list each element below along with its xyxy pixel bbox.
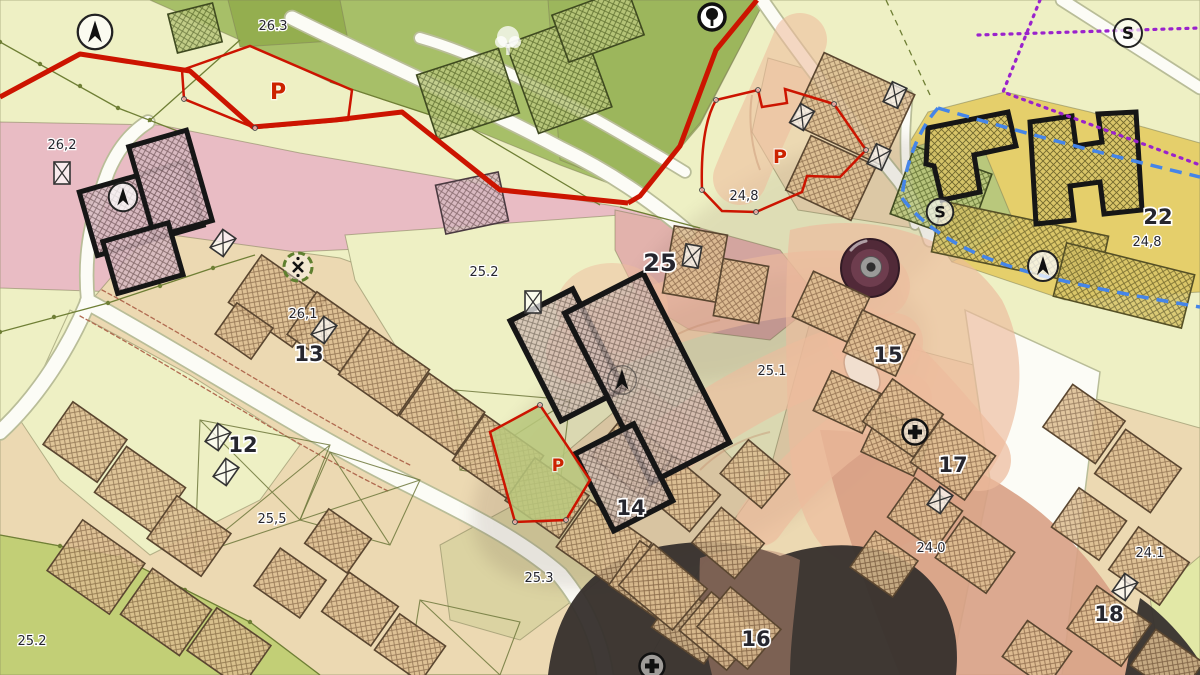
public-parcel-label: P	[270, 80, 286, 105]
parcel-label: 25	[643, 249, 676, 277]
parcel-label: 26,1	[289, 307, 318, 322]
public-parcel-label: P	[773, 146, 787, 168]
parcel-label: 25.3	[525, 571, 554, 586]
parcel-label: 25.2	[470, 265, 499, 280]
parcel-label: 24,8	[730, 189, 759, 204]
parcel-label: 16	[741, 627, 770, 651]
parcel-label: 25.1	[758, 364, 787, 379]
parcel-label: 24.1	[1136, 546, 1165, 561]
tree-dark-icon	[699, 4, 725, 30]
screenshot-root: SS26.326,226,1131225,525.225.225.32525.1…	[0, 0, 1200, 675]
rect-x-icon	[525, 291, 541, 313]
survey-dot	[52, 315, 56, 319]
crossed-circle-icon	[284, 253, 312, 281]
north-circle-icon	[1028, 251, 1058, 281]
parcel-label: 15	[873, 343, 902, 367]
dot	[296, 274, 299, 277]
parcel-vertex-dot	[564, 518, 569, 523]
survey-dot	[78, 84, 82, 88]
parcel-vertex-dot	[714, 98, 719, 103]
plus-circle-icon	[640, 654, 665, 675]
parcel-label: 22	[1143, 205, 1172, 229]
parcel-vertex-dot	[700, 188, 705, 193]
parcel-label: 24.0	[917, 541, 946, 556]
parcel-label: 26,2	[48, 138, 77, 153]
parcel-vertex-dot	[754, 210, 759, 215]
parcel-label: 25.2	[18, 634, 47, 649]
s-circle-icon: S	[1114, 19, 1142, 47]
survey-dot	[116, 106, 120, 110]
cadastral-map: SS26.326,226,1131225,525.225.225.32525.1…	[0, 0, 1200, 675]
tree-trunk	[506, 44, 510, 55]
plus-circle-icon	[903, 420, 928, 445]
public-parcel-label: P	[552, 456, 564, 476]
north-circle-icon	[109, 183, 138, 212]
s-circle-icon: S	[927, 199, 954, 226]
parcel-vertex-dot	[253, 126, 258, 131]
tree-canopy	[495, 36, 507, 48]
survey-dot	[106, 301, 110, 305]
parcel-label: 14	[616, 496, 645, 520]
parcel-label: 24,8	[1133, 235, 1162, 250]
parcel-vertex-dot	[864, 148, 869, 153]
survey-dot	[158, 284, 162, 288]
symbol-letter: S	[1122, 24, 1134, 44]
symbol-letter: S	[934, 203, 946, 222]
parcel-label: 25,5	[258, 512, 287, 527]
survey-dot	[38, 62, 42, 66]
parcel-label: 12	[228, 433, 257, 457]
parcel-vertex-dot	[756, 88, 761, 93]
building-hatched	[713, 258, 768, 323]
tree-trunk	[711, 17, 714, 26]
pen-center	[866, 262, 875, 271]
parcel-vertex-dot	[832, 102, 837, 107]
rect-x-icon	[682, 244, 702, 268]
north-circle-icon	[78, 15, 113, 50]
parcel-label: 26.3	[259, 19, 288, 34]
rect-x-icon	[54, 162, 70, 184]
survey-dot	[211, 266, 215, 270]
survey-dot	[248, 620, 252, 624]
parcel-label: 17	[938, 453, 967, 477]
parcel-vertex-dot	[182, 97, 187, 102]
dot	[296, 257, 299, 260]
parcel-label: 13	[294, 342, 323, 366]
parcel-vertex-dot	[538, 403, 543, 408]
tree-canopy	[509, 36, 521, 48]
parcel-vertex-dot	[513, 520, 518, 525]
parcel-label: 18	[1094, 602, 1123, 626]
survey-dot	[58, 544, 62, 548]
